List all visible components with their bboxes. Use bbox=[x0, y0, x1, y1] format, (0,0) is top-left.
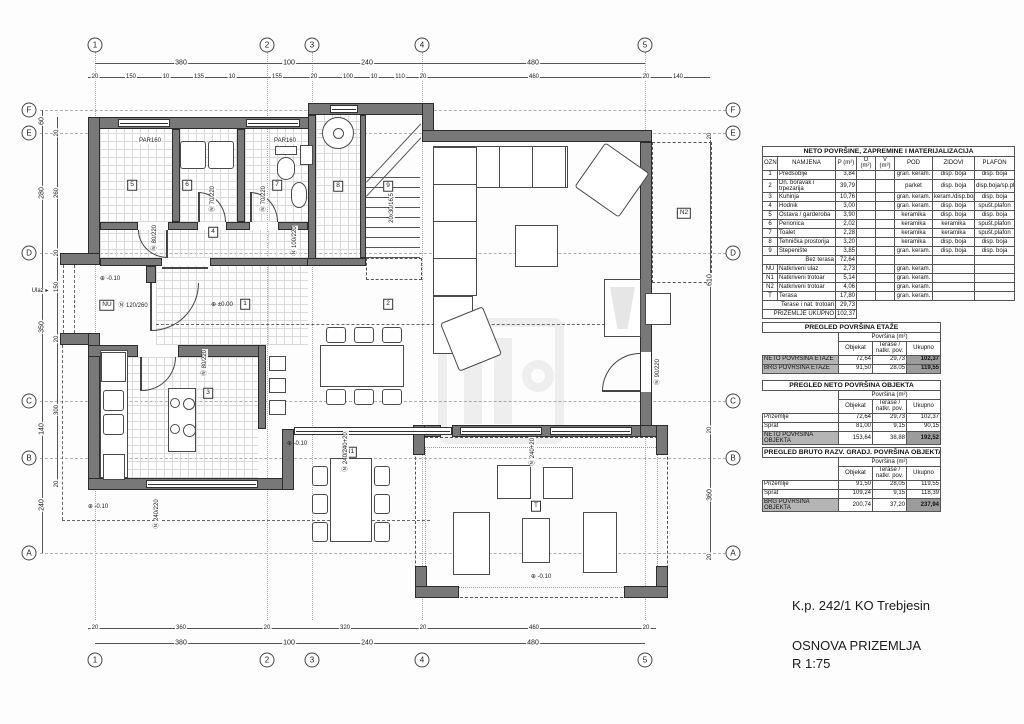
dimension-label: 20 bbox=[642, 74, 651, 80]
table-row: Terase i nat. trotoari29,73 bbox=[763, 301, 1015, 310]
grid-bubble: F bbox=[22, 103, 37, 118]
table-cell: gran. keram. bbox=[895, 274, 933, 283]
table-cell bbox=[857, 256, 876, 265]
entry-dashed-line bbox=[63, 265, 64, 333]
table-cell bbox=[857, 220, 876, 229]
dimension-label: 20 bbox=[91, 74, 100, 80]
table-cell bbox=[857, 193, 876, 202]
table-cell: disp. boja bbox=[975, 211, 1015, 220]
table-cell: PRIZEMLJE UKUPNO bbox=[763, 310, 836, 319]
wall bbox=[226, 222, 250, 230]
grid-bubble: 4 bbox=[415, 653, 430, 668]
table-cell: 28,05 bbox=[873, 364, 907, 373]
table-cell: keram./disp.boja bbox=[933, 193, 975, 202]
table-cell: 5,14 bbox=[836, 274, 857, 283]
drawing-title: OSNOVA PRIZEMLJA bbox=[792, 638, 921, 653]
wall bbox=[308, 115, 316, 266]
wall bbox=[640, 142, 652, 437]
net-areas-table: NETO POVRŠINE, ZAPREMINE I MATERIJALIZAC… bbox=[762, 146, 1015, 319]
table-cell: Terase i nat. trotoari bbox=[763, 301, 836, 310]
window-label: Ⓝ 240/240+20 bbox=[343, 431, 349, 473]
table-cell: Terase / natkr. pov. bbox=[873, 400, 907, 414]
table-cell: gran. keram. bbox=[895, 247, 933, 256]
table-cell: keramika bbox=[933, 220, 975, 229]
table-cell: Stepenište bbox=[778, 247, 836, 256]
window-label: Ⓝ 240+20 bbox=[530, 437, 536, 467]
window bbox=[118, 119, 170, 127]
table-row: 3Kuhinja10,76gran. keram.keram./disp.boj… bbox=[763, 193, 1015, 202]
table-cell: POD bbox=[895, 157, 933, 171]
table-cell: Natkriveni trotoar bbox=[778, 274, 836, 283]
cooktop-burner bbox=[183, 424, 196, 437]
dimension-label: 20 bbox=[707, 553, 713, 562]
table-title-row: PREGLED POVRŠINA ETAŽE bbox=[763, 323, 941, 333]
table-cell: disp. boja bbox=[975, 170, 1015, 179]
window-label: PAR160 bbox=[138, 138, 162, 144]
table-cell bbox=[933, 283, 975, 292]
dimension-label: 155 bbox=[271, 74, 283, 80]
table-row: PRIZEMLJE UKUPNO102,37 bbox=[763, 310, 1015, 319]
dimension-label: 20 bbox=[707, 426, 713, 435]
table-row: 8Tehnička prostorija3,20keramikadisp. bo… bbox=[763, 238, 1015, 247]
grid-bubble: 2 bbox=[260, 653, 275, 668]
table-cell: 29,73 bbox=[873, 355, 907, 364]
table-cell: Ostava / garderoba bbox=[778, 211, 836, 220]
table-cell: 90,15 bbox=[907, 422, 941, 431]
outdoor-chair bbox=[312, 466, 328, 486]
table-row: Površina (m²) bbox=[763, 333, 941, 342]
dimension-line bbox=[57, 117, 58, 484]
dimension-label: 280 bbox=[39, 186, 46, 200]
window bbox=[246, 119, 300, 127]
chair bbox=[326, 327, 346, 343]
table-cell: keramika bbox=[933, 229, 975, 238]
table-cell: 102,37 bbox=[907, 413, 941, 422]
door-label: Ⓝ 80/220 bbox=[202, 349, 208, 377]
table-cell: 237,94 bbox=[907, 498, 941, 512]
table-title: NETO POVRŠINE, ZAPREMINE I MATERIJALIZAC… bbox=[763, 147, 1015, 157]
dimension-label: 60 bbox=[39, 116, 46, 126]
dimension-label: 380 bbox=[174, 640, 188, 647]
room-label-kuhinja: 3 bbox=[203, 388, 213, 399]
table-cell: Ukupno bbox=[907, 400, 941, 414]
terrace-table bbox=[522, 518, 550, 563]
table-cell: NU bbox=[763, 265, 778, 274]
upper-floor-dashed-line bbox=[156, 324, 640, 325]
drawing-scale: R 1:75 bbox=[792, 656, 830, 671]
table-row: NETO POVRŠINA ETAŽE72,6429,73102,37 bbox=[763, 355, 941, 364]
table-cell: 7 bbox=[763, 229, 778, 238]
table-cell: 38,88 bbox=[873, 431, 907, 445]
table-cell bbox=[857, 274, 876, 283]
table-cell bbox=[933, 256, 975, 265]
room-label-predsoblje: 1 bbox=[240, 299, 250, 310]
dimension-label: 20 bbox=[54, 129, 60, 138]
table-cell: Natkriveni ulaz bbox=[778, 265, 836, 274]
table-cell: 3,84 bbox=[836, 170, 857, 179]
table-row: NETO POVRŠINA OBJEKTA153,6438,88192,52 bbox=[763, 431, 941, 445]
table-cell: spušt.plafon bbox=[975, 202, 1015, 211]
window bbox=[330, 105, 358, 113]
table-cell: parket bbox=[895, 179, 933, 193]
grid-bubble: 5 bbox=[638, 38, 653, 53]
dimension-label: 480 bbox=[526, 640, 540, 647]
table-cell: N1 bbox=[763, 274, 778, 283]
table-cell: 4 bbox=[763, 202, 778, 211]
table-cell: Objekat bbox=[839, 400, 873, 414]
elevation-mark: ⊕ -0.10 bbox=[87, 504, 109, 510]
table-cell bbox=[857, 170, 876, 179]
toilet-tank bbox=[275, 146, 297, 155]
table-cell: Prizemlje bbox=[763, 413, 839, 422]
table-cell: 2,28 bbox=[836, 229, 857, 238]
table-cell: OZN bbox=[763, 157, 778, 171]
cooktop-burner bbox=[170, 424, 180, 434]
dimension-label: 380 bbox=[174, 60, 188, 67]
grid-bubble: C bbox=[726, 394, 741, 409]
table-cell bbox=[857, 310, 1015, 319]
table-cell: 39,79 bbox=[836, 179, 857, 193]
table-cell: Površina (m²) bbox=[839, 391, 941, 400]
table-cell: 192,52 bbox=[907, 431, 941, 445]
table-row: 5Ostava / garderoba3,90keramikadisp. boj… bbox=[763, 211, 1015, 220]
table-row: OZNNAMJENAP (m²)O (m²)V (m³)PODZIDOVIPLA… bbox=[763, 157, 1015, 171]
table-cell: 109,24 bbox=[839, 489, 873, 498]
table-cell: 17,80 bbox=[836, 292, 857, 301]
table-title: PREGLED BRUTO RAZV. GRADJ. POVRŠINA OBJE… bbox=[763, 448, 941, 458]
dimension-label: 100 bbox=[342, 74, 354, 80]
table-cell bbox=[933, 274, 975, 283]
room-label-toalet: 7 bbox=[272, 180, 282, 191]
table-cell: N2 bbox=[763, 283, 778, 292]
table-cell bbox=[876, 247, 895, 256]
table-cell: Objekat bbox=[839, 467, 873, 481]
table-cell bbox=[876, 179, 895, 193]
dimension-label: 300 bbox=[54, 404, 60, 416]
table-cell bbox=[763, 342, 839, 356]
table-cell: 91,50 bbox=[839, 480, 873, 489]
outdoor-table bbox=[330, 458, 372, 542]
boiler-inner bbox=[333, 128, 344, 139]
table-cell: disp. boja bbox=[933, 202, 975, 211]
floor-hodnik bbox=[100, 230, 308, 258]
chair bbox=[354, 327, 374, 343]
pillar bbox=[624, 586, 668, 598]
table-row: Sprat109,249,15118,39 bbox=[763, 489, 941, 498]
table-cell bbox=[975, 292, 1015, 301]
window bbox=[146, 480, 258, 488]
table-cell: P (m²) bbox=[836, 157, 857, 171]
table-cell: 72,64 bbox=[836, 256, 857, 265]
sink bbox=[103, 414, 124, 435]
door-leaf bbox=[162, 267, 208, 269]
grid-bubble: A bbox=[22, 546, 37, 561]
table-cell bbox=[763, 400, 839, 414]
dimension-label: 10 bbox=[162, 74, 171, 80]
dimension-label: 20 bbox=[54, 335, 60, 344]
wall bbox=[168, 222, 198, 230]
table-cell bbox=[876, 220, 895, 229]
table-cell: PLAFON bbox=[975, 157, 1015, 171]
wall bbox=[100, 258, 162, 266]
dimension-label: 20 bbox=[91, 625, 100, 631]
table-row: Bez terasa72,64 bbox=[763, 256, 1015, 265]
table-cell: gran. keram. bbox=[895, 283, 933, 292]
table-cell: 200,74 bbox=[839, 498, 873, 512]
armchair bbox=[574, 142, 649, 217]
elevation-mark: ⊕ -0.10 bbox=[530, 574, 552, 580]
table-title-row: PREGLED NETO POVRŠINA OBJEKTA bbox=[763, 381, 941, 391]
door-opening bbox=[641, 352, 651, 392]
door-label: Ⓝ 100/220 bbox=[292, 225, 298, 256]
outdoor-chair bbox=[312, 522, 328, 542]
table-cell: 1 bbox=[763, 170, 778, 179]
table-cell: disp. boja bbox=[933, 179, 975, 193]
table-cell: disp. boja bbox=[975, 193, 1015, 202]
dimension-label: 360 bbox=[175, 625, 187, 631]
planter bbox=[543, 467, 573, 499]
table-cell bbox=[763, 458, 839, 467]
wall bbox=[88, 117, 100, 265]
wall bbox=[100, 222, 138, 230]
table-cell bbox=[876, 170, 895, 179]
wall bbox=[178, 345, 266, 357]
grid-bubble: C bbox=[22, 394, 37, 409]
table-cell: gran. keram. bbox=[895, 193, 933, 202]
table-cell: 3,20 bbox=[836, 238, 857, 247]
dimension-label: 480 bbox=[526, 60, 540, 67]
table-cell: gran. keram. bbox=[895, 202, 933, 211]
table-cell bbox=[975, 283, 1015, 292]
table-cell bbox=[857, 301, 1015, 310]
elevation-mark: ⊕ -0.10 bbox=[99, 276, 121, 282]
chair bbox=[382, 327, 402, 343]
sink bbox=[103, 390, 124, 411]
room-label-natkriveni-trotoar-2: N2 bbox=[677, 208, 691, 219]
table-cell bbox=[876, 274, 895, 283]
table-cell bbox=[876, 202, 895, 211]
window bbox=[550, 427, 632, 435]
table-title: PREGLED POVRŠINA ETAŽE bbox=[763, 323, 941, 333]
parcel-id: K.p. 242/1 KO Trebjesin bbox=[792, 598, 930, 613]
pillar bbox=[415, 586, 459, 598]
table-cell: 2,02 bbox=[836, 220, 857, 229]
table-cell: Terase / natkr. pov. bbox=[873, 467, 907, 481]
table-cell: 3,85 bbox=[836, 247, 857, 256]
dimension-label: 460 bbox=[528, 625, 540, 631]
outdoor-chair bbox=[374, 494, 390, 514]
sideboard bbox=[269, 400, 286, 415]
table-cell: 37,20 bbox=[873, 498, 907, 512]
door-label: Ⓝ 70/220 bbox=[210, 185, 216, 213]
dimension-label: 135 bbox=[193, 74, 205, 80]
washbasin bbox=[291, 182, 307, 208]
dining-table bbox=[320, 345, 404, 387]
dimension-label: 140 bbox=[672, 74, 684, 80]
table-cell: gran. keram. bbox=[895, 265, 933, 274]
table-cell: 2 bbox=[763, 179, 778, 193]
sideboard bbox=[269, 378, 286, 393]
wall bbox=[146, 266, 156, 283]
table-cell bbox=[857, 211, 876, 220]
grid-bubble: B bbox=[22, 451, 37, 466]
dimension-label: 360 bbox=[707, 488, 714, 502]
elevation-mark: ⊕ ±0.00 bbox=[210, 302, 234, 308]
table-cell: Sprat bbox=[763, 422, 839, 431]
sliding-door bbox=[294, 427, 452, 435]
dimension-label: 20 bbox=[642, 625, 651, 631]
table-cell bbox=[857, 265, 876, 274]
entry-dashed-line bbox=[74, 265, 75, 333]
table-row: BRG POVRŠINA OBJEKTA200,7437,20237,94 bbox=[763, 498, 941, 512]
washing-machine bbox=[208, 141, 234, 169]
washing-machine bbox=[180, 141, 206, 169]
table-cell bbox=[933, 292, 975, 301]
table-cell: disp. boja bbox=[933, 170, 975, 179]
outdoor-chair bbox=[374, 522, 390, 542]
table-cell: Ukupno bbox=[907, 342, 941, 356]
table-row: 6Perionica2,02keramikakeramikaspušt.plaf… bbox=[763, 220, 1015, 229]
table-cell: Natkriveni trotoar bbox=[778, 283, 836, 292]
dimension-label: 10 bbox=[370, 74, 379, 80]
table-cell: 153,64 bbox=[839, 431, 873, 445]
room-label-terasa: T bbox=[531, 501, 541, 512]
entrance-label: Ulaz ▸ bbox=[31, 288, 50, 294]
dimension-label: 10 bbox=[228, 74, 237, 80]
cooktop-burner bbox=[170, 398, 180, 408]
grid-bubble: A bbox=[726, 546, 741, 561]
coffee-table bbox=[515, 225, 558, 267]
dimension-label: 150 bbox=[54, 281, 60, 293]
sideboard bbox=[269, 356, 286, 371]
grid-bubble: D bbox=[22, 246, 37, 261]
outdoor-chair bbox=[374, 466, 390, 486]
table-cell bbox=[857, 179, 876, 193]
table-cell: disp. boja bbox=[933, 238, 975, 247]
wall bbox=[258, 345, 266, 429]
door-label: Ⓝ 120/260 bbox=[117, 303, 148, 309]
dimension-label: 240 bbox=[39, 498, 46, 512]
table-title: PREGLED NETO POVRŠINA OBJEKTA bbox=[763, 381, 941, 391]
wall bbox=[237, 129, 245, 222]
cooktop-burner bbox=[183, 398, 195, 410]
table-cell: 81,00 bbox=[839, 422, 873, 431]
table-cell: 3,00 bbox=[836, 202, 857, 211]
lounger bbox=[583, 512, 617, 573]
room-label-perionica: 6 bbox=[182, 180, 192, 191]
dimension-label: 20 bbox=[263, 625, 272, 631]
table-cell: Prizemlje bbox=[763, 480, 839, 489]
table-cell: Površina (m²) bbox=[839, 333, 941, 342]
room-label-natkriveni-ulaz: NU bbox=[99, 300, 114, 311]
table-title-row: NETO POVRŠINE, ZAPREMINE I MATERIJALIZAC… bbox=[763, 147, 1015, 157]
table-cell: Perionica bbox=[778, 220, 836, 229]
table-cell: 8 bbox=[763, 238, 778, 247]
room-label-boravak: 2 bbox=[383, 299, 393, 310]
table-cell: 72,64 bbox=[839, 355, 873, 364]
dimension-label: 240 bbox=[360, 60, 374, 67]
table-cell bbox=[763, 391, 839, 400]
table-cell: 102,37 bbox=[907, 355, 941, 364]
dimension-line bbox=[88, 628, 656, 629]
table-cell: 10,76 bbox=[836, 193, 857, 202]
door-label: Ⓝ 70/220 bbox=[261, 185, 267, 213]
table-cell: 9,15 bbox=[873, 422, 907, 431]
paving-dashed-line bbox=[62, 345, 63, 520]
dimension-label: 20 bbox=[419, 625, 428, 631]
door-label: Ⓝ 90/220 bbox=[655, 358, 661, 386]
table-cell: Sprat bbox=[763, 489, 839, 498]
table-row: NUNatkriveni ulaz2,73gran. keram. bbox=[763, 265, 1015, 274]
room-label-hodnik: 4 bbox=[208, 227, 218, 238]
table-row: BRG POVRŠINA ETAŽE91,5028,05119,55 bbox=[763, 364, 941, 373]
table-cell: keramika bbox=[895, 238, 933, 247]
wall bbox=[360, 115, 366, 258]
table-cell: disp. boja bbox=[975, 238, 1015, 247]
chair bbox=[354, 389, 374, 405]
table-row: 7Toalet2,28keramikakeramikaspušt.plafon bbox=[763, 229, 1015, 238]
table-cell: 72,64 bbox=[839, 413, 873, 422]
table-cell bbox=[857, 238, 876, 247]
grid-bubble: 1 bbox=[88, 38, 103, 53]
table-cell: Površina (m²) bbox=[839, 458, 941, 467]
table-cell: Toalet bbox=[778, 229, 836, 238]
table-cell: Dn. boravak i trpezarija bbox=[778, 179, 836, 193]
table-cell: keramika bbox=[895, 229, 933, 238]
table-cell bbox=[933, 265, 975, 274]
outdoor-chair bbox=[312, 494, 328, 514]
wall bbox=[282, 429, 294, 490]
table-row: ObjekatTerase / natkr. pov.Ukupno bbox=[763, 400, 941, 414]
elevation-mark: ⊕ -0.10 bbox=[286, 441, 308, 447]
dimension-label: 100 bbox=[282, 60, 296, 67]
table-cell: NETO POVRŠINA OBJEKTA bbox=[763, 431, 839, 445]
window-label: Ⓝ 240/220 bbox=[154, 498, 160, 529]
table-cell bbox=[857, 283, 876, 292]
table-cell bbox=[876, 211, 895, 220]
window bbox=[460, 427, 542, 435]
table-cell bbox=[975, 274, 1015, 283]
table-cell: 29,73 bbox=[873, 413, 907, 422]
table-cell: 28,05 bbox=[873, 480, 907, 489]
table-cell: T bbox=[763, 292, 778, 301]
table-cell: V (m³) bbox=[876, 157, 895, 171]
paving-dashed-line bbox=[62, 520, 430, 521]
table-row: ObjekatTerase / natkr. pov.Ukupno bbox=[763, 342, 941, 356]
table-cell: keramika bbox=[895, 211, 933, 220]
dimension-label: 20 bbox=[419, 74, 428, 80]
dimension-label: 240 bbox=[360, 640, 374, 647]
dimension-label: 460 bbox=[528, 74, 540, 80]
table-cell bbox=[876, 193, 895, 202]
grid-bubble: F bbox=[726, 103, 741, 118]
table-cell: 29,73 bbox=[836, 301, 857, 310]
table-cell bbox=[876, 256, 895, 265]
stair-label: 20x30/16,5 bbox=[389, 192, 395, 224]
table-cell: Kuhinja bbox=[778, 193, 836, 202]
table-cell: gran. keram. bbox=[895, 170, 933, 179]
sofa bbox=[433, 146, 477, 296]
wall bbox=[172, 129, 180, 222]
table-cell: 102,37 bbox=[836, 310, 857, 319]
table-cell bbox=[857, 292, 876, 301]
grid-bubble: 2 bbox=[260, 38, 275, 53]
table-cell bbox=[876, 238, 895, 247]
table-cell bbox=[895, 256, 933, 265]
grid-bubble: D bbox=[726, 246, 741, 261]
dimension-label: 150 bbox=[125, 74, 137, 80]
dimension-label: 260 bbox=[54, 187, 60, 199]
